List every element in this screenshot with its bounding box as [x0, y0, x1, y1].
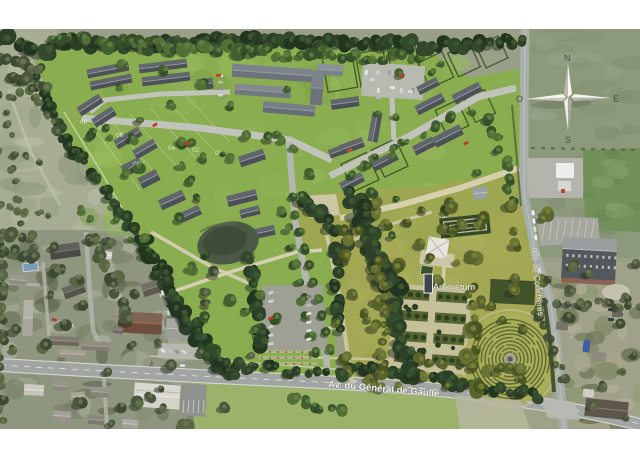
svg-text:N: N — [564, 53, 571, 63]
svg-text:06: 06 — [116, 132, 124, 139]
svg-text:O: O — [516, 94, 523, 104]
svg-text:S: S — [565, 135, 571, 145]
svg-text:Arboretum: Arboretum — [433, 282, 475, 292]
svg-text:E: E — [613, 94, 619, 104]
svg-text:02: 02 — [192, 147, 200, 154]
svg-text:08: 08 — [80, 119, 88, 126]
